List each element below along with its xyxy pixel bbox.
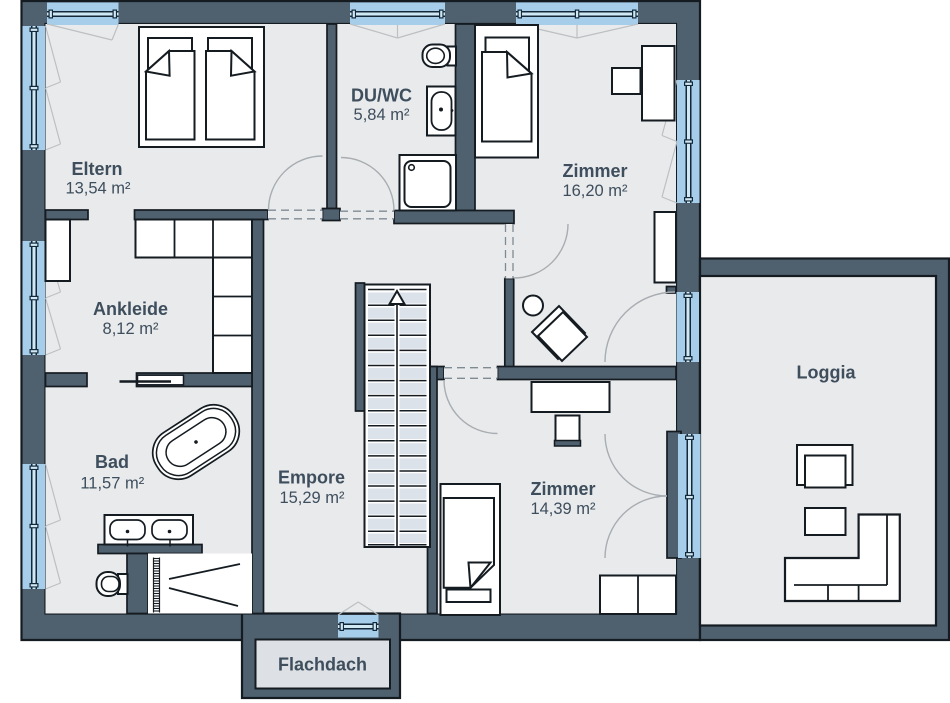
svg-text:11,57 m²: 11,57 m² [80, 475, 144, 493]
svg-text:Zimmer: Zimmer [530, 479, 595, 499]
svg-text:5,84 m²: 5,84 m² [354, 106, 410, 124]
svg-text:13,54 m²: 13,54 m² [65, 180, 131, 198]
svg-text:Loggia: Loggia [797, 363, 857, 383]
svg-text:Ankleide: Ankleide [93, 299, 168, 319]
svg-text:15,29 m²: 15,29 m² [279, 489, 345, 507]
svg-text:8,12 m²: 8,12 m² [103, 320, 159, 338]
svg-text:Empore: Empore [278, 468, 345, 488]
svg-text:14,39 m²: 14,39 m² [530, 500, 596, 518]
svg-text:Flachdach: Flachdach [278, 655, 367, 675]
svg-text:Zimmer: Zimmer [562, 161, 627, 181]
svg-text:DU/WC: DU/WC [351, 86, 412, 106]
svg-text:Bad: Bad [95, 452, 129, 472]
svg-text:Eltern: Eltern [71, 159, 122, 179]
svg-text:16,20 m²: 16,20 m² [562, 182, 628, 200]
